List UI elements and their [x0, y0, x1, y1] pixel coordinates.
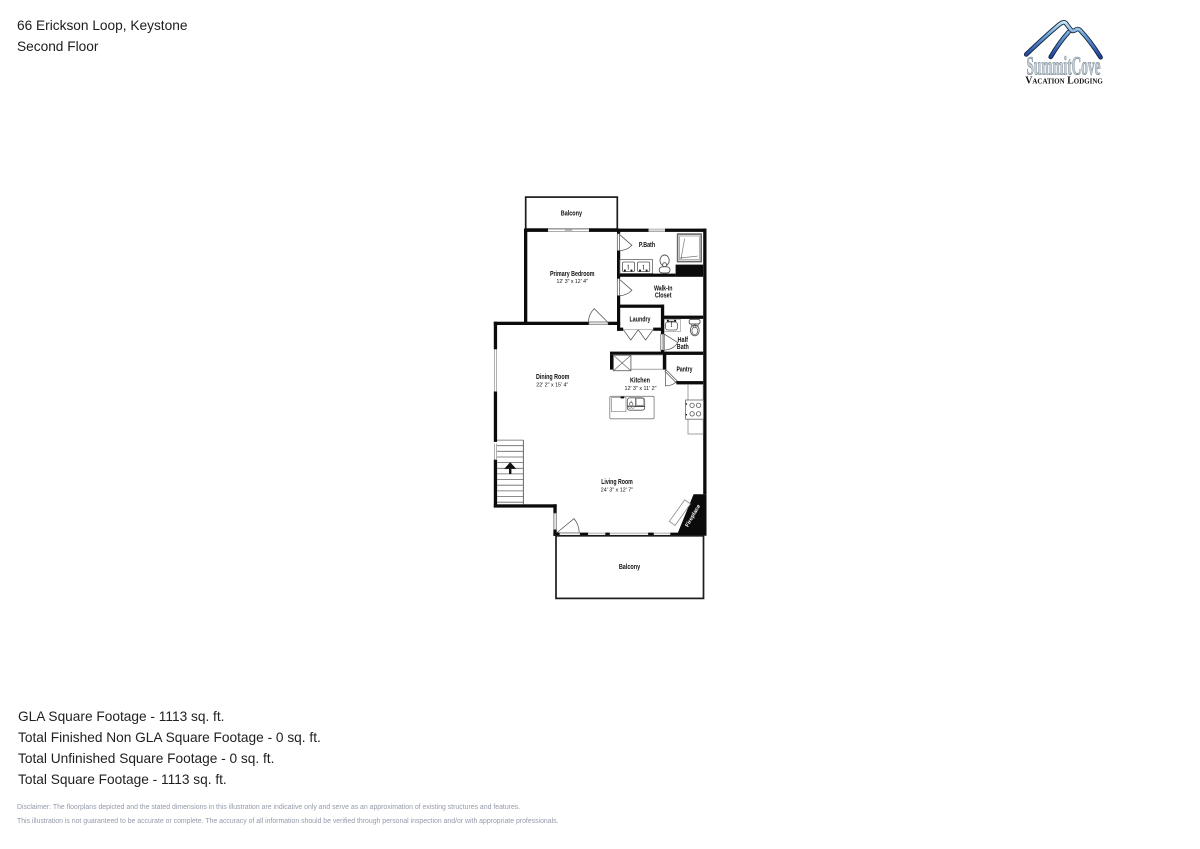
svg-text:Living Room: Living Room: [601, 477, 633, 486]
svg-text:Balcony: Balcony: [561, 208, 582, 217]
svg-text:Closet: Closet: [655, 291, 672, 300]
svg-text:Primary Bedroom: Primary Bedroom: [550, 269, 595, 278]
svg-text:Kitchen: Kitchen: [630, 375, 650, 384]
svg-text:Balcony: Balcony: [619, 562, 640, 571]
svg-text:Laundry: Laundry: [630, 314, 651, 323]
svg-text:Pantry: Pantry: [677, 364, 693, 373]
svg-text:Vacation Lodging: Vacation Lodging: [1025, 75, 1103, 86]
svg-text:12' 3" x 11' 2": 12' 3" x 11' 2": [625, 386, 657, 392]
svg-text:Dining Room: Dining Room: [536, 372, 569, 381]
svg-text:24' 3" x 12' 7": 24' 3" x 12' 7": [601, 487, 633, 493]
svg-text:Bath: Bath: [677, 342, 689, 351]
svg-text:22' 2" x 15' 4": 22' 2" x 15' 4": [536, 383, 568, 389]
svg-text:P.Bath: P.Bath: [639, 240, 655, 249]
svg-text:12' 3" x 12' 4": 12' 3" x 12' 4": [557, 279, 588, 285]
